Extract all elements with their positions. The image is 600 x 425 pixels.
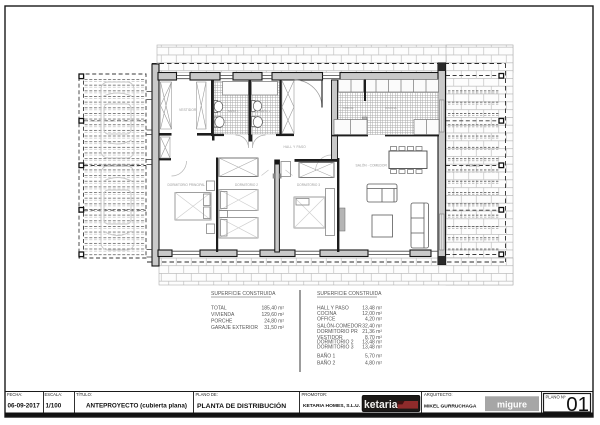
svg-text:ARQUITECTO:: ARQUITECTO:	[424, 392, 453, 397]
svg-text:BAÑO 2: BAÑO 2	[260, 108, 271, 113]
svg-text:OFFICE: OFFICE	[343, 106, 354, 110]
svg-text:COCINA: COCINA	[385, 106, 397, 110]
svg-text:DORMITORIO 3: DORMITORIO 3	[297, 183, 320, 187]
svg-text:ANTEPROYECTO (cubierta plana): ANTEPROYECTO (cubierta plana)	[86, 403, 187, 410]
svg-text:FECHA:: FECHA:	[7, 392, 22, 397]
svg-text:SALÓN - COMEDOR: SALÓN - COMEDOR	[356, 163, 388, 168]
svg-text:01: 01	[566, 393, 589, 416]
svg-text:31,50 m²: 31,50 m²	[264, 325, 284, 331]
svg-text:DORMITORIO 3: DORMITORIO 3	[317, 345, 354, 351]
svg-text:PLANO Nº: PLANO Nº	[546, 395, 566, 400]
svg-text:GARAJE EXTERIOR: GARAJE EXTERIOR	[211, 325, 258, 331]
svg-text:SUPERFICIE CONSTRUIDA: SUPERFICIE CONSTRUIDA	[211, 291, 276, 297]
svg-text:migure: migure	[497, 400, 527, 410]
svg-text:HALL Y PASO: HALL Y PASO	[284, 145, 307, 149]
svg-text:BAÑO 2: BAÑO 2	[317, 360, 336, 367]
svg-text:PLANTA DE DISTRIBUCIÓN: PLANTA DE DISTRIBUCIÓN	[197, 401, 286, 410]
svg-text:PORCHE: PORCHE	[211, 319, 233, 325]
svg-text:OFFICE: OFFICE	[317, 317, 336, 323]
svg-text:ESCALA:: ESCALA:	[45, 392, 63, 397]
svg-text:4,80 m²: 4,80 m²	[365, 361, 382, 367]
svg-text:BAÑO 1: BAÑO 1	[317, 353, 336, 360]
svg-text:185,40 m²: 185,40 m²	[261, 306, 284, 312]
svg-text:KETARIA HOMES, S.L.U.: KETARIA HOMES, S.L.U.	[303, 403, 361, 409]
svg-text:1/100: 1/100	[46, 403, 62, 410]
svg-text:DORMITORIO 2: DORMITORIO 2	[235, 183, 258, 187]
svg-text:GARAJE EXTERIOR: GARAJE EXTERIOR	[102, 164, 133, 168]
svg-text:129,60 m²: 129,60 m²	[261, 312, 284, 318]
svg-text:PORCHE: PORCHE	[467, 164, 481, 168]
svg-text:MIKEL GURRUCHAGA: MIKEL GURRUCHAGA	[424, 404, 477, 410]
svg-text:ketaria: ketaria	[364, 399, 398, 411]
svg-text:TÍTULO:: TÍTULO:	[76, 392, 92, 397]
svg-text:BAÑO 1: BAÑO 1	[228, 108, 239, 113]
svg-text:DORMITORIO PRINCIPAL: DORMITORIO PRINCIPAL	[168, 183, 206, 187]
svg-text:4,20 m²: 4,20 m²	[365, 317, 382, 323]
svg-text:5,70 m²: 5,70 m²	[365, 354, 382, 360]
svg-text:VESTIDOR: VESTIDOR	[179, 108, 197, 112]
svg-text:TOTAL: TOTAL	[211, 306, 227, 312]
svg-text:VIVIENDA: VIVIENDA	[211, 312, 235, 318]
svg-text:06-09-2017: 06-09-2017	[8, 403, 41, 410]
svg-text:24,80 m²: 24,80 m²	[264, 319, 284, 325]
svg-text:PROMOTOR:: PROMOTOR:	[302, 392, 328, 397]
svg-text:PLANO DE:: PLANO DE:	[196, 392, 218, 397]
svg-text:SUPERFICIE CONSTRUIDA: SUPERFICIE CONSTRUIDA	[317, 291, 382, 297]
svg-text:13,48 m²: 13,48 m²	[362, 345, 382, 351]
